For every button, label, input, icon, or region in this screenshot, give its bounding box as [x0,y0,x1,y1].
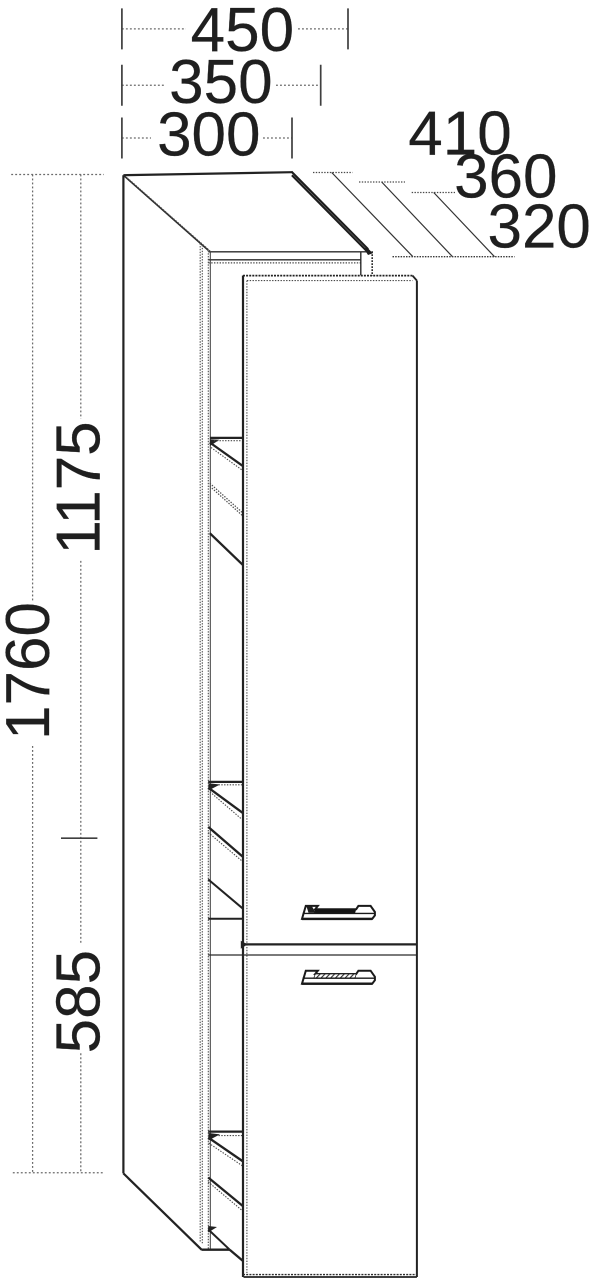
svg-text:1175: 1175 [45,421,114,554]
svg-text:585: 585 [45,950,114,1053]
svg-text:1760: 1760 [0,602,63,740]
svg-text:300: 300 [157,101,260,170]
svg-text:320: 320 [487,193,590,262]
